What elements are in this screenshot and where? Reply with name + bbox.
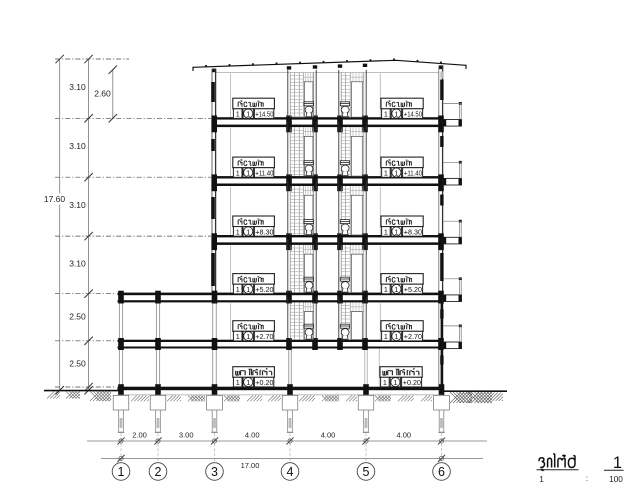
svg-text:1: 1 xyxy=(539,474,544,484)
svg-text:3.10: 3.10 xyxy=(69,82,86,92)
svg-text:1: 1 xyxy=(384,227,388,236)
svg-text:3: 3 xyxy=(211,465,218,479)
svg-text:2.50: 2.50 xyxy=(69,359,86,369)
svg-text:1: 1 xyxy=(393,378,397,387)
svg-text:+14.50: +14.50 xyxy=(255,110,273,119)
svg-text:+8.30: +8.30 xyxy=(404,227,422,236)
svg-text:17.60: 17.60 xyxy=(44,194,66,204)
svg-text:1: 1 xyxy=(246,227,250,236)
svg-text:3.10: 3.10 xyxy=(69,259,86,269)
svg-text:2.50: 2.50 xyxy=(69,312,86,322)
svg-text:+5.20: +5.20 xyxy=(404,285,422,294)
svg-text:17.00: 17.00 xyxy=(241,461,260,470)
svg-text:1: 1 xyxy=(236,168,240,177)
svg-text:1: 1 xyxy=(246,285,250,294)
svg-text:+2.70: +2.70 xyxy=(255,332,273,341)
svg-text:3.10: 3.10 xyxy=(69,141,86,151)
svg-text:4.00: 4.00 xyxy=(396,431,411,440)
svg-text:1: 1 xyxy=(246,110,250,119)
svg-text:+14.50: +14.50 xyxy=(404,110,422,119)
svg-text:1: 1 xyxy=(384,332,388,341)
svg-text:2: 2 xyxy=(155,465,162,479)
svg-text:1: 1 xyxy=(246,378,250,387)
svg-text:1: 1 xyxy=(236,110,240,119)
svg-text:+2.70: +2.70 xyxy=(404,332,422,341)
svg-text:1: 1 xyxy=(236,332,240,341)
svg-text:+11.40: +11.40 xyxy=(255,168,273,177)
svg-text:1: 1 xyxy=(236,285,240,294)
svg-text:100: 100 xyxy=(609,474,623,484)
svg-text:1: 1 xyxy=(394,227,398,236)
svg-text:1: 1 xyxy=(236,227,240,236)
svg-text:1: 1 xyxy=(394,110,398,119)
svg-text:+5.20: +5.20 xyxy=(255,285,273,294)
svg-text:4.00: 4.00 xyxy=(321,431,336,440)
svg-text:1: 1 xyxy=(394,168,398,177)
svg-text:2.60: 2.60 xyxy=(94,89,111,99)
svg-text:1: 1 xyxy=(246,332,250,341)
svg-text:1: 1 xyxy=(236,378,240,387)
svg-text:2.00: 2.00 xyxy=(132,431,147,440)
svg-text:1: 1 xyxy=(613,454,622,472)
svg-text:+11.40: +11.40 xyxy=(404,168,422,177)
svg-text::: : xyxy=(586,474,588,483)
svg-text:1: 1 xyxy=(384,110,388,119)
svg-text:1: 1 xyxy=(384,285,388,294)
svg-text:1: 1 xyxy=(383,378,387,387)
svg-text:1: 1 xyxy=(394,332,398,341)
svg-text:1: 1 xyxy=(394,285,398,294)
svg-text:1: 1 xyxy=(246,168,250,177)
svg-text:1: 1 xyxy=(118,465,125,479)
svg-text:+8.30: +8.30 xyxy=(255,227,273,236)
svg-text:4: 4 xyxy=(287,465,294,479)
svg-text:3.00: 3.00 xyxy=(179,431,194,440)
svg-text:4.00: 4.00 xyxy=(245,431,260,440)
svg-text:5: 5 xyxy=(363,465,370,479)
svg-text:+0.20: +0.20 xyxy=(403,378,421,387)
svg-text:6: 6 xyxy=(438,465,445,479)
svg-text:3.10: 3.10 xyxy=(69,200,86,210)
svg-text:+0.20: +0.20 xyxy=(255,378,273,387)
svg-text:1: 1 xyxy=(384,168,388,177)
